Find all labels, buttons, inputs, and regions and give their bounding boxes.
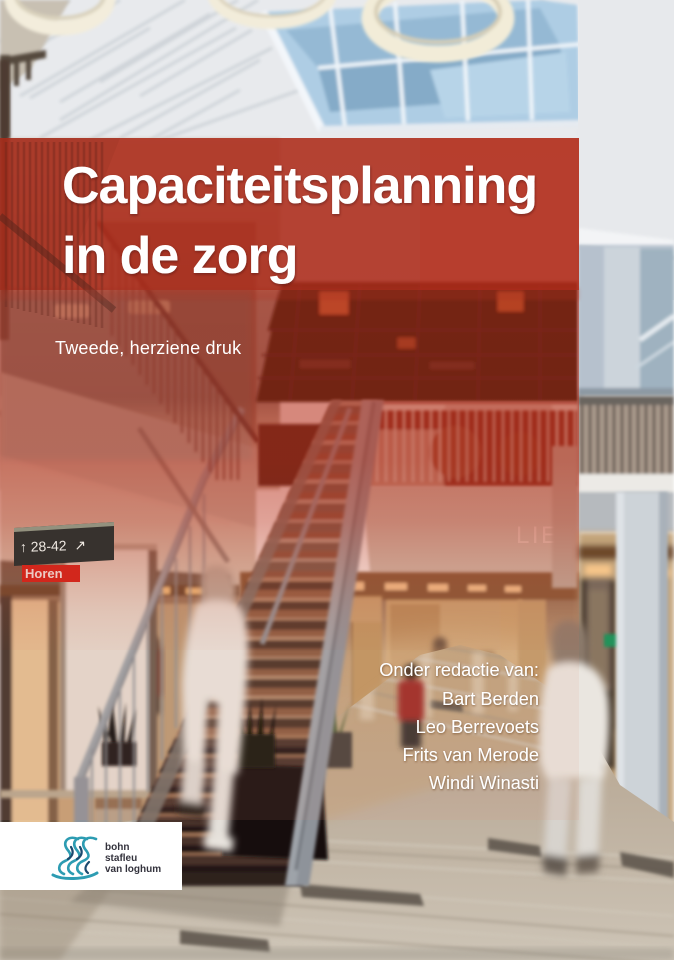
svg-text:Bart Berden: Bart Berden [442,689,539,709]
svg-text:Windi Winasti: Windi Winasti [429,773,539,793]
svg-text:Frits van Merode: Frits van Merode [403,745,539,765]
svg-text:Leo Berrevoets: Leo Berrevoets [416,717,539,737]
svg-text:bohn: bohn [105,842,129,853]
svg-text:Onder redactie van:: Onder redactie van: [379,660,539,680]
svg-text:stafleu: stafleu [105,853,137,864]
svg-text:↑ 28-42 ↗: ↑ 28-42 ↗ [20,537,87,555]
svg-text:Horen: Horen [25,566,63,581]
svg-text:in de zorg: in de zorg [62,227,298,285]
svg-text:van loghum: van loghum [105,864,161,875]
svg-text:Tweede, herziene druk: Tweede, herziene druk [55,338,242,358]
svg-text:Capaciteitsplanning: Capaciteitsplanning [62,157,537,215]
